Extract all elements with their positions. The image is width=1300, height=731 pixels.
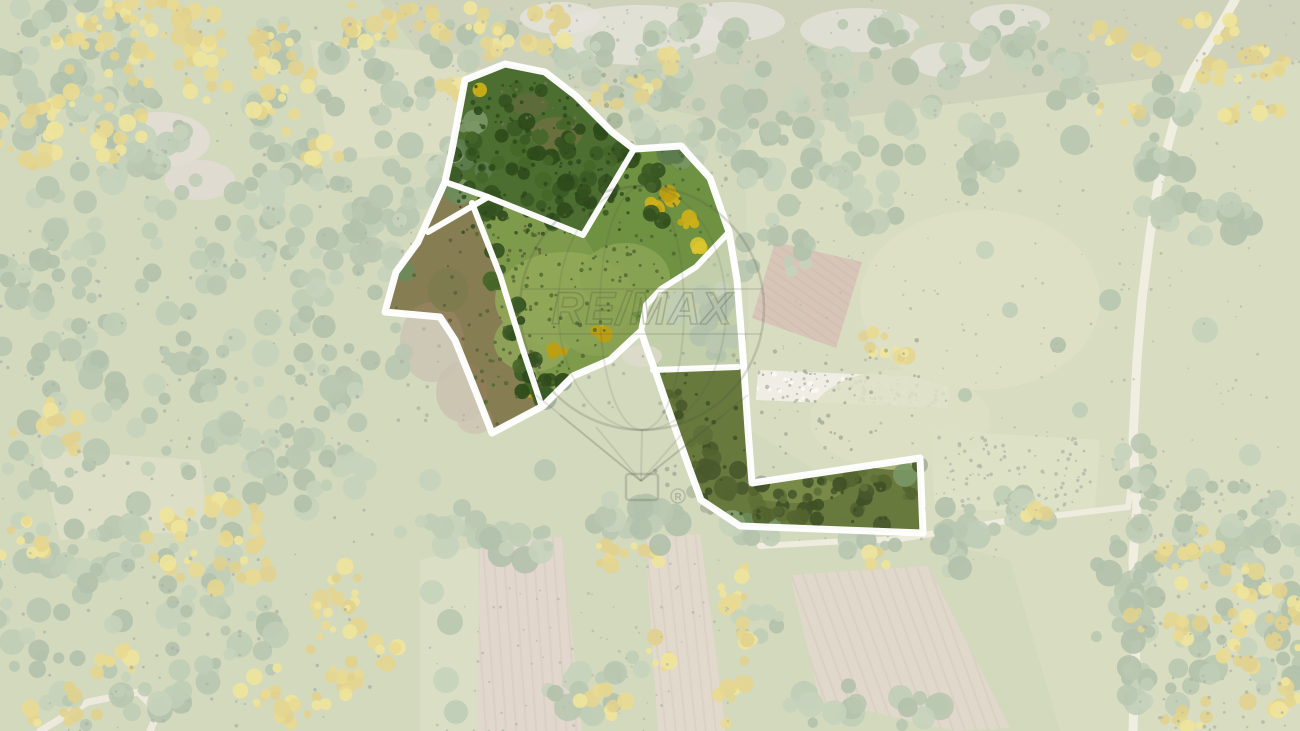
registered-trademark-symbol: R — [674, 492, 682, 503]
watermark-text: RE/MAX — [551, 283, 734, 334]
aerial-property-photo: RE/MAX R — [0, 0, 1300, 731]
aerial-photo-canvas: RE/MAX R — [0, 0, 1300, 731]
